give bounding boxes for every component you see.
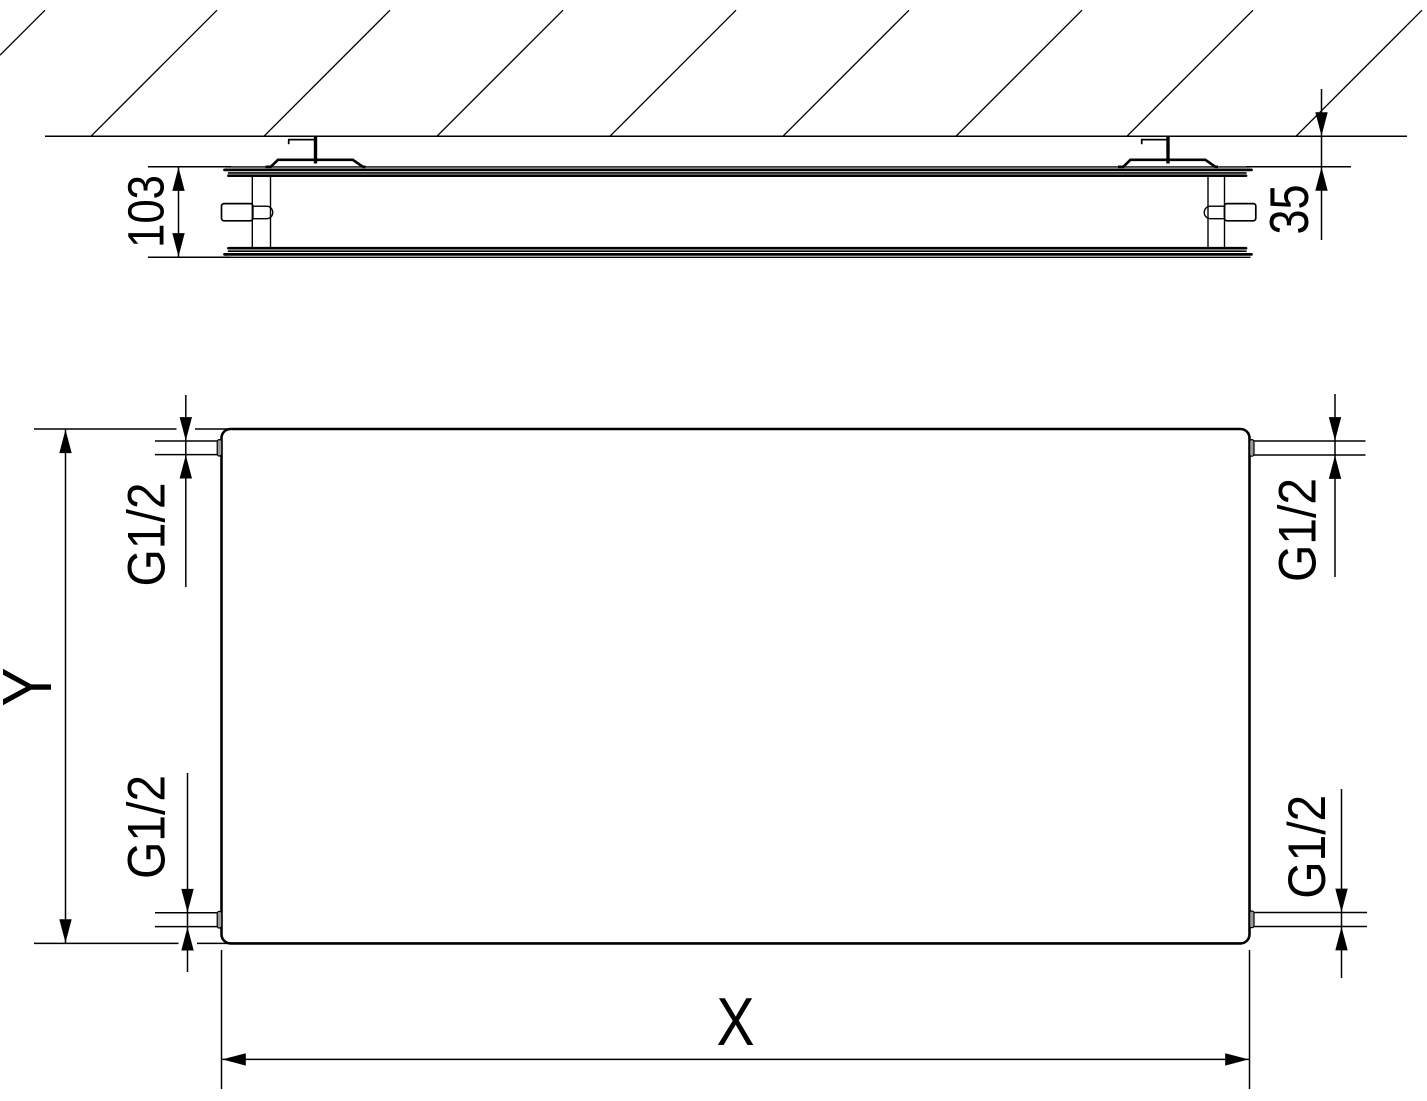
svg-text:103: 103 bbox=[118, 175, 175, 248]
svg-text:X: X bbox=[717, 984, 755, 1060]
svg-text:G1/2: G1/2 bbox=[1278, 795, 1337, 899]
svg-text:35: 35 bbox=[1258, 185, 1320, 235]
svg-text:Y: Y bbox=[0, 668, 66, 707]
svg-text:G1/2: G1/2 bbox=[1269, 478, 1328, 582]
svg-text:G1/2: G1/2 bbox=[118, 775, 177, 879]
svg-text:G1/2: G1/2 bbox=[118, 483, 177, 587]
